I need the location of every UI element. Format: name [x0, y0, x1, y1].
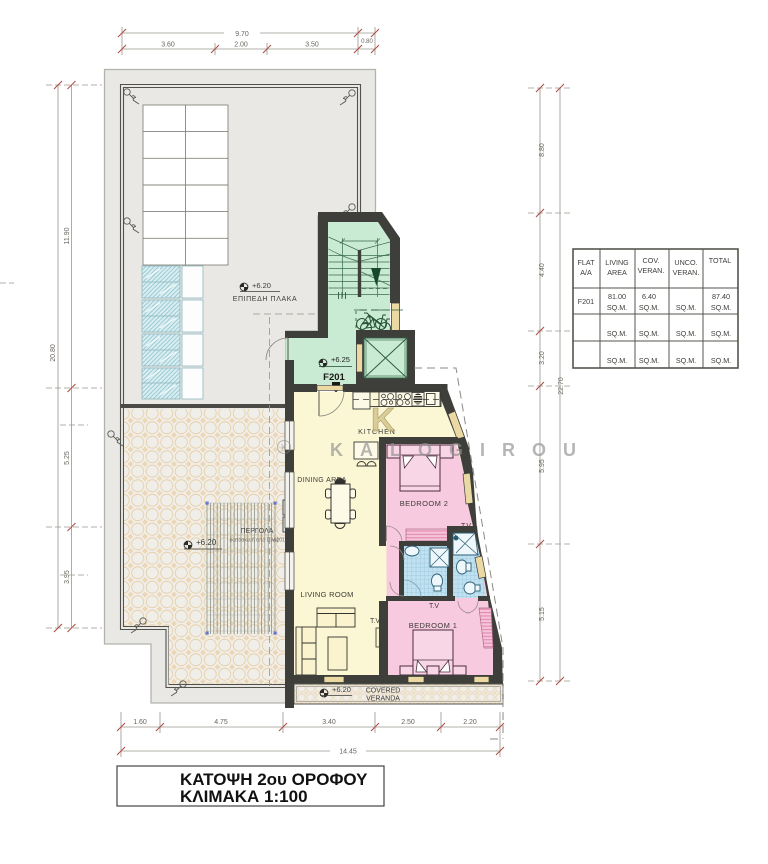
svg-text:8.80: 8.80 [539, 143, 546, 157]
svg-text:FLAT: FLAT [577, 258, 595, 267]
svg-text:2.20: 2.20 [463, 719, 477, 726]
svg-text:ΠΕΡΓΟΛΑ: ΠΕΡΓΟΛΑ [241, 528, 274, 535]
svg-text:+6.20: +6.20 [252, 281, 271, 290]
svg-text:Δ201: Δ201 [273, 538, 285, 544]
svg-text:SQ.M.: SQ.M. [711, 329, 731, 338]
svg-text:A/A: A/A [580, 268, 592, 277]
svg-text:3.95: 3.95 [64, 570, 71, 584]
svg-text:81.00: 81.00 [608, 292, 626, 301]
svg-text:SQ.M.: SQ.M. [607, 303, 627, 312]
svg-text:TOTAL: TOTAL [709, 256, 732, 265]
svg-text:SQ.M.: SQ.M. [639, 303, 659, 312]
svg-text:LIVING ROOM: LIVING ROOM [300, 590, 353, 599]
svg-text:5.15: 5.15 [539, 607, 546, 621]
svg-text:COVERED: COVERED [366, 688, 401, 695]
svg-text:+6.25: +6.25 [331, 355, 350, 364]
svg-text:T.V: T.V [370, 618, 380, 625]
svg-text:3.40: 3.40 [322, 719, 336, 726]
svg-text:2.50: 2.50 [401, 719, 415, 726]
svg-text:SQ.M.: SQ.M. [711, 356, 731, 365]
svg-text:SQ.M.: SQ.M. [639, 356, 659, 365]
svg-text:4.75: 4.75 [214, 719, 228, 726]
svg-text:LIVING: LIVING [605, 258, 629, 267]
svg-text:SQ.M.: SQ.M. [607, 329, 627, 338]
svg-text:BEDROOM 1: BEDROOM 1 [409, 621, 458, 630]
svg-text:SQ.M.: SQ.M. [607, 356, 627, 365]
svg-text:+6.20: +6.20 [332, 685, 351, 694]
svg-text:(κατασκευή από ξύλο): (κατασκευή από ξύλο) [230, 537, 279, 544]
svg-text:T.V: T.V [429, 603, 439, 610]
svg-text:SQ.M.: SQ.M. [676, 303, 696, 312]
svg-text:2.00: 2.00 [234, 42, 248, 49]
svg-text:87.40: 87.40 [712, 292, 730, 301]
svg-text:5.95: 5.95 [539, 459, 546, 473]
svg-text:KALOGIROU: KALOGIROU [330, 440, 593, 460]
svg-text:DINING AREA: DINING AREA [297, 477, 347, 484]
svg-text:1.60: 1.60 [133, 719, 147, 726]
svg-text:K: K [371, 401, 395, 438]
svg-text:22.70: 22.70 [558, 377, 565, 395]
svg-text:COV.: COV. [643, 256, 660, 265]
svg-text:3.50: 3.50 [305, 42, 319, 49]
svg-text:UNCO.: UNCO. [674, 258, 697, 267]
svg-text:20.80: 20.80 [50, 344, 57, 362]
svg-text:5.25: 5.25 [64, 451, 71, 465]
svg-text:4.40: 4.40 [539, 263, 546, 277]
svg-text:SQ.M.: SQ.M. [711, 303, 731, 312]
svg-text:SQ.M.: SQ.M. [639, 329, 659, 338]
svg-text:VERANDA: VERANDA [366, 696, 400, 703]
svg-text:0.80: 0.80 [361, 39, 373, 45]
svg-text:14.45: 14.45 [339, 749, 357, 756]
svg-text:VERAN.: VERAN. [673, 268, 700, 277]
svg-text:K: K [281, 443, 287, 453]
svg-text:F201: F201 [323, 372, 345, 383]
svg-text:F201: F201 [578, 297, 594, 306]
svg-text:+6.20: +6.20 [196, 538, 217, 547]
svg-text:ΕΠΙΠΕΔΗ ΠΛΑΚΑ: ΕΠΙΠΕΔΗ ΠΛΑΚΑ [233, 296, 298, 303]
svg-text:3.20: 3.20 [539, 351, 546, 365]
svg-text:SQ.M.: SQ.M. [676, 329, 696, 338]
svg-text:9.70: 9.70 [235, 31, 249, 38]
svg-text:AREA: AREA [607, 268, 627, 277]
svg-text:6.40: 6.40 [642, 292, 656, 301]
svg-text:BEDROOM 2: BEDROOM 2 [400, 499, 449, 508]
svg-text:VERAN.: VERAN. [638, 266, 665, 275]
svg-text:3.60: 3.60 [161, 42, 175, 49]
svg-text:ΚΛΙΜΑΚΑ 1:100: ΚΛΙΜΑΚΑ 1:100 [180, 787, 308, 806]
svg-text:11.90: 11.90 [64, 227, 71, 244]
svg-text:SQ.M.: SQ.M. [676, 356, 696, 365]
